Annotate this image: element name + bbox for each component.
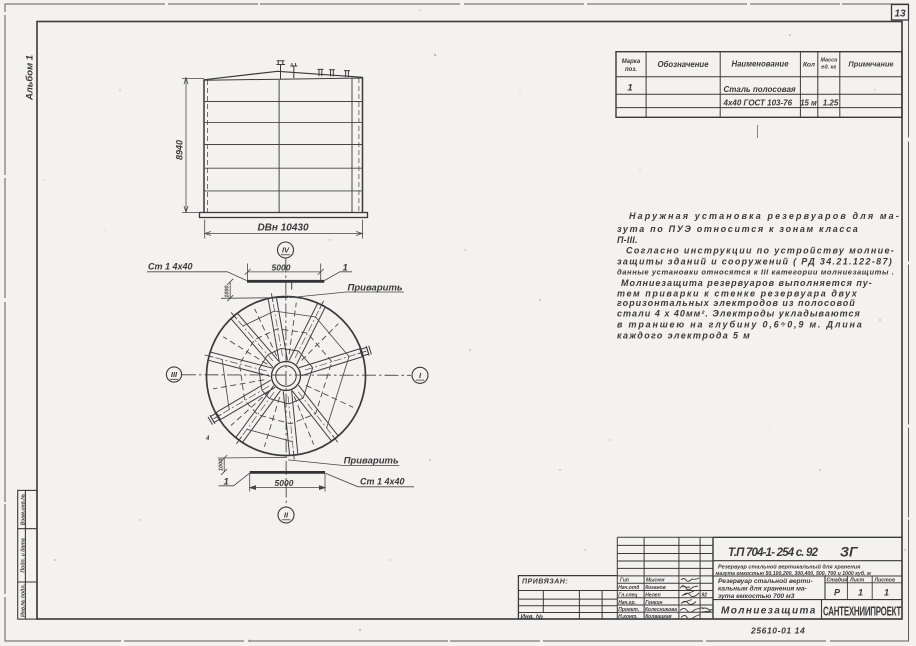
- svg-text:Альбом 1: Альбом 1: [25, 55, 36, 101]
- svg-text:5000: 5000: [275, 478, 294, 488]
- svg-text:Проект.: Проект.: [618, 607, 639, 613]
- svg-text:Гл.спец: Гл.спец: [618, 593, 637, 599]
- svg-text:1.25: 1.25: [823, 98, 839, 107]
- svg-text:поз.: поз.: [625, 67, 637, 73]
- svg-text:Лист: Лист: [849, 577, 865, 583]
- svg-text:Молниезащита резервуаров вып: Молниезащита резервуаров выполняется пу-: [621, 278, 872, 288]
- svg-text:ПРИВЯЗАН:: ПРИВЯЗАН:: [522, 579, 568, 586]
- svg-text:Колесникова: Колесникова: [645, 607, 677, 613]
- svg-text:Масса: Масса: [821, 58, 838, 64]
- svg-text:Наименование: Наименование: [731, 60, 789, 69]
- svg-text:1: 1: [884, 588, 889, 598]
- svg-text:Мысюн: Мысюн: [646, 578, 665, 584]
- svg-text:1: 1: [627, 83, 632, 94]
- svg-text:мазута емкостью 50,100,200, 3: мазута емкостью 50,100,200, 300,400, 500…: [716, 570, 871, 577]
- svg-text:ЗГ: ЗГ: [840, 544, 859, 560]
- svg-text:92: 92: [702, 593, 708, 599]
- svg-text:Взам.инв.№: Взам.инв.№: [21, 494, 27, 525]
- svg-text:САНТЕХНИИПРОЕКТ: САНТЕХНИИПРОЕКТ: [823, 605, 901, 619]
- svg-text:Подп. и дата: Подп. и дата: [21, 538, 27, 572]
- svg-text:5000: 5000: [272, 262, 291, 272]
- svg-text:1000: 1000: [224, 286, 230, 298]
- svg-text:25610-01 14: 25610-01 14: [750, 626, 805, 636]
- svg-text:IV: IV: [282, 246, 290, 255]
- svg-text:защиты зданий и сооружений (: защиты зданий и сооружений ( РД 34.21.12…: [617, 257, 892, 267]
- svg-text:Резервуар стальной вертикаль: Резервуар стальной вертикальный для хран…: [718, 563, 861, 570]
- svg-text:DВн 10430: DВн 10430: [257, 223, 309, 234]
- svg-text:Согласно инструкции по устро: Согласно инструкции по устройству молние…: [626, 246, 894, 256]
- svg-text:Ст 1 4х40: Ст 1 4х40: [148, 262, 193, 272]
- svg-text:зута емкостью 700 м3: зута емкостью 700 м3: [718, 593, 795, 600]
- svg-text:15 м: 15 м: [800, 98, 817, 107]
- svg-text:кальным для хранения ма-: кальным для хранения ма-: [718, 585, 807, 593]
- svg-text:Коганов: Коганов: [645, 585, 665, 591]
- svg-text:Т.П 704-1- 254 с. 92: Т.П 704-1- 254 с. 92: [728, 547, 819, 559]
- svg-text:данные установки относятся к I: данные установки относятся к III категор…: [617, 268, 894, 277]
- svg-text:стали 4 х 40мм². Электроды: стали 4 х 40мм². Электроды укладываются: [617, 309, 861, 319]
- svg-text:каждого электрода 5 м: каждого электрода 5 м: [617, 331, 750, 341]
- svg-text:Стадия: Стадия: [827, 577, 848, 583]
- svg-text:Листов: Листов: [874, 577, 895, 583]
- svg-text:тем приварки к стенке рез: тем приварки к стенке резервуара двух: [617, 289, 858, 299]
- svg-text:Нач.отд: Нач.отд: [618, 585, 639, 591]
- svg-text:Приварить: Приварить: [344, 455, 399, 466]
- svg-text:Марка: Марка: [622, 59, 641, 65]
- svg-text:Сталь полосовая: Сталь полосовая: [724, 85, 796, 94]
- svg-text:Н.конт.: Н.конт.: [618, 614, 637, 620]
- svg-text:Кол: Кол: [803, 62, 815, 69]
- svg-text:Инв.№ подл.: Инв.№ подл.: [21, 584, 27, 617]
- svg-text:Генкин: Генкин: [645, 600, 662, 606]
- svg-text:1000: 1000: [219, 459, 225, 471]
- svg-text:Нач.гр.: Нач.гр.: [618, 600, 636, 606]
- svg-text:ед. кг: ед. кг: [821, 65, 836, 71]
- svg-text:зута по ПУЭ относится к з: зута по ПУЭ относится к зонам класса: [617, 224, 858, 234]
- svg-text:Примечание: Примечание: [848, 60, 893, 69]
- svg-text:4х40 ГОСТ 103-76: 4х40 ГОСТ 103-76: [723, 98, 793, 107]
- svg-text:Инв. №: Инв. №: [521, 613, 544, 620]
- svg-text:13: 13: [894, 9, 906, 20]
- svg-text:Колвацкая: Колвацкая: [645, 614, 671, 620]
- svg-text:Нелеп: Нелеп: [645, 593, 660, 599]
- svg-text:Молниезащита: Молниезащита: [721, 606, 817, 617]
- svg-text:8940: 8940: [175, 140, 185, 160]
- svg-text:Гип: Гип: [620, 578, 629, 584]
- svg-text:Резервуар стальной верти-: Резервуар стальной верти-: [718, 577, 813, 585]
- svg-text:П-III.: П-III.: [617, 235, 638, 245]
- svg-text:горизонтальных электродов: горизонтальных электродов из полосовой: [617, 298, 855, 308]
- svg-text:1: 1: [858, 588, 863, 598]
- svg-text:4: 4: [205, 436, 210, 442]
- svg-text:III: III: [171, 370, 178, 379]
- svg-text:Ст 1 4х40: Ст 1 4х40: [360, 477, 405, 487]
- svg-text:Обозначение: Обозначение: [657, 60, 709, 69]
- svg-text:Р: Р: [834, 588, 841, 598]
